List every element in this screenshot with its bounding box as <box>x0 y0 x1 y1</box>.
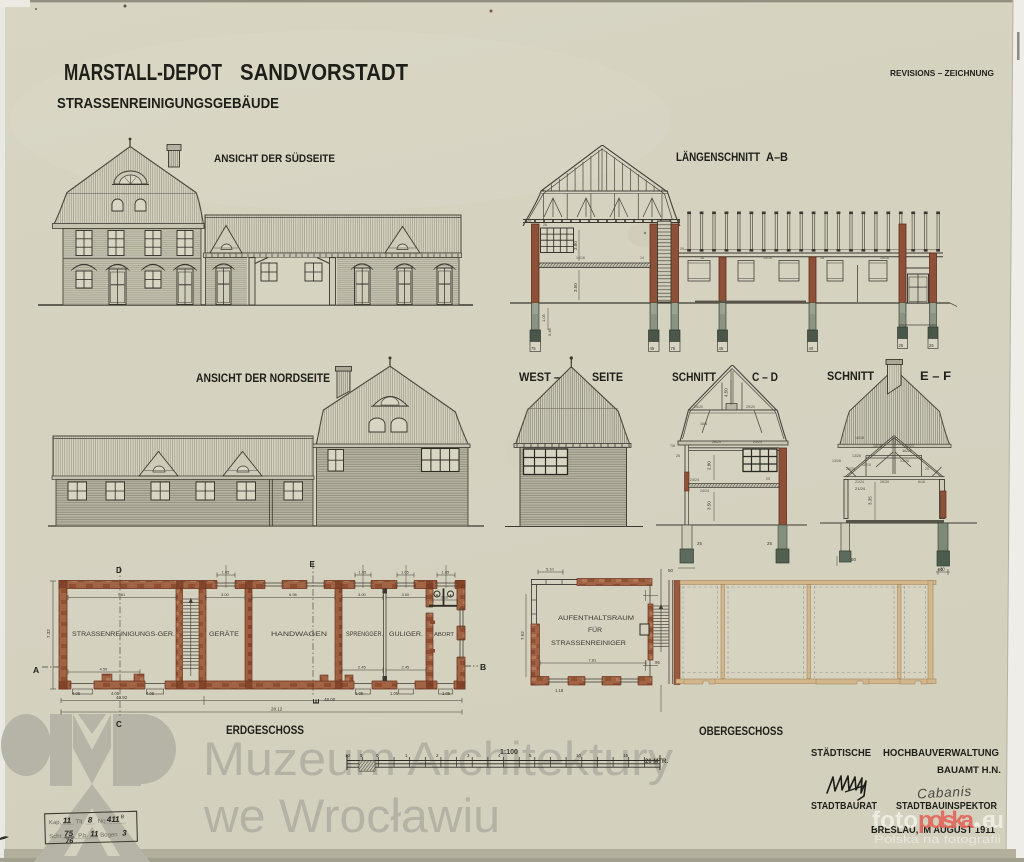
svg-text:GERÄTE: GERÄTE <box>209 631 239 638</box>
svg-text:1:100: 1:100 <box>500 749 518 756</box>
svg-text:1.05: 1.05 <box>390 691 399 696</box>
svg-text:HOCHBAUVERWALTUNG: HOCHBAUVERWALTUNG <box>883 748 999 759</box>
svg-text:25: 25 <box>767 541 773 546</box>
svg-text:3.00: 3.00 <box>221 592 230 597</box>
svg-text:FÜR: FÜR <box>588 627 603 634</box>
svg-text:3.50: 3.50 <box>573 283 578 292</box>
svg-text:WEST –: WEST – <box>519 372 561 384</box>
svg-text:25/20: 25/20 <box>746 405 755 409</box>
svg-text:45: 45 <box>719 346 724 351</box>
svg-text:Kap.: Kap. <box>49 820 62 826</box>
svg-text:.96: .96 <box>654 660 660 665</box>
svg-text:SEITE: SEITE <box>592 372 623 384</box>
svg-text:4.05: 4.05 <box>72 691 81 696</box>
svg-text:GULIGER.: GULIGER. <box>389 632 423 638</box>
svg-text:26/30: 26/30 <box>880 480 889 484</box>
svg-text:24/24: 24/24 <box>753 440 762 444</box>
svg-text:24/24: 24/24 <box>700 489 709 493</box>
svg-text:STRASSENREINIGUNGS-GER.: STRASSENREINIGUNGS-GER. <box>72 632 175 638</box>
svg-text:Polska na fotografii: Polska na fotografii <box>874 834 1001 846</box>
svg-text:OBERGESCHOSS: OBERGESCHOSS <box>699 724 783 738</box>
svg-text:1.18: 1.18 <box>555 688 564 693</box>
svg-text:SPRENGGER.: SPRENGGER. <box>346 632 383 638</box>
svg-text:3.35: 3.35 <box>868 496 873 505</box>
svg-text:STRASSENREINIGUNGSGEBÄUDE: STRASSENREINIGUNGSGEBÄUDE <box>57 95 279 112</box>
svg-text:25/20: 25/20 <box>694 405 703 409</box>
svg-text:STÄDTISCHE: STÄDTISCHE <box>811 746 871 759</box>
svg-text:3.80: 3.80 <box>573 241 578 250</box>
svg-text:50: 50 <box>851 557 857 562</box>
svg-text:75: 75 <box>531 346 536 351</box>
svg-text:28: 28 <box>543 223 547 227</box>
svg-text:BAUAMT H.N.: BAUAMT H.N. <box>937 765 1001 776</box>
svg-text:411: 411 <box>106 815 121 824</box>
svg-text:D: D <box>116 566 122 575</box>
svg-text:20: 20 <box>680 247 684 251</box>
svg-text:21/24: 21/24 <box>855 480 864 484</box>
svg-text:E – F: E – F <box>920 371 951 383</box>
svg-text:1.05: 1.05 <box>442 691 451 696</box>
svg-text:25: 25 <box>676 454 680 458</box>
svg-text:7.81: 7.81 <box>589 658 598 663</box>
svg-text:7.61: 7.61 <box>118 592 127 597</box>
svg-text:8/16: 8/16 <box>918 480 925 484</box>
svg-text:SCHNITT: SCHNITT <box>827 371 874 383</box>
svg-text:3: 3 <box>122 829 127 838</box>
svg-text:SANDVORSTADT: SANDVORSTADT <box>240 59 408 85</box>
svg-text:MARSTALL-DEPOT: MARSTALL-DEPOT <box>64 59 222 85</box>
svg-text:Tit.: Tit. <box>76 819 85 825</box>
svg-text:1.05: 1.05 <box>401 570 410 575</box>
svg-text:14: 14 <box>640 256 644 260</box>
svg-text:STADTBAURAT: STADTBAURAT <box>811 801 877 812</box>
svg-text:LÄNGENSCHNITT: LÄNGENSCHNITT <box>676 151 760 164</box>
svg-text:2.45: 2.45 <box>358 665 367 670</box>
svg-text:A–B: A–B <box>766 152 788 164</box>
svg-text:E: E <box>310 560 316 569</box>
svg-text:10: 10 <box>345 753 351 758</box>
svg-text:Muzeum Architektury: Muzeum Architektury <box>203 732 674 785</box>
svg-text:50: 50 <box>938 567 944 572</box>
svg-text:Schr.: Schr. <box>49 834 63 840</box>
svg-text:13/26: 13/26 <box>900 459 909 463</box>
svg-text:25: 25 <box>527 219 531 223</box>
svg-text:REVISIONS – ZEICHNUNG: REVISIONS – ZEICHNUNG <box>890 68 994 78</box>
svg-text:3.00: 3.00 <box>402 592 411 597</box>
svg-text:STRASSENREINIGER: STRASSENREINIGER <box>551 641 627 647</box>
svg-text:No: No <box>98 819 106 825</box>
svg-text:AUFENTHALTSRAUM: AUFENTHALTSRAUM <box>558 616 634 622</box>
svg-text:48.00: 48.00 <box>324 697 336 702</box>
svg-text:40.92: 40.92 <box>116 695 128 700</box>
svg-text:Cabanis: Cabanis <box>917 784 972 802</box>
svg-text:45: 45 <box>650 346 655 351</box>
svg-text:3.00: 3.00 <box>358 592 367 597</box>
svg-text:5.10: 5.10 <box>546 567 555 572</box>
svg-text:ANSICHT DER NORDSEITE: ANSICHT DER NORDSEITE <box>196 373 330 385</box>
svg-text:14/16: 14/16 <box>873 444 882 448</box>
svg-text:21/24: 21/24 <box>855 486 866 491</box>
svg-text:6.98: 6.98 <box>289 592 298 597</box>
svg-text:3.50: 3.50 <box>707 501 712 510</box>
svg-text:0.45: 0.45 <box>547 327 552 336</box>
svg-text:20 MTR.: 20 MTR. <box>645 759 668 765</box>
svg-text:7.52: 7.52 <box>520 631 525 640</box>
svg-text:1.05: 1.05 <box>541 313 546 322</box>
svg-text:4.50: 4.50 <box>100 667 109 672</box>
svg-text:ANSICHT DER SÜDSEITE: ANSICHT DER SÜDSEITE <box>214 152 335 165</box>
svg-text:16/18: 16/18 <box>855 436 864 440</box>
svg-text:16/4: 16/4 <box>700 422 707 426</box>
svg-text:15: 15 <box>623 753 629 758</box>
svg-text:24/24: 24/24 <box>690 478 699 482</box>
svg-text:10: 10 <box>576 753 582 758</box>
svg-text:28.12: 28.12 <box>271 707 283 712</box>
svg-text:2.45: 2.45 <box>402 665 411 670</box>
svg-text:40: 40 <box>809 346 814 351</box>
svg-text:16/21: 16/21 <box>902 448 913 453</box>
svg-text:C – D: C – D <box>752 372 778 384</box>
svg-text:75: 75 <box>671 346 676 351</box>
svg-text:Bogen: Bogen <box>100 832 118 838</box>
svg-text:7/8: 7/8 <box>670 444 675 448</box>
svg-text:1.05: 1.05 <box>355 691 364 696</box>
svg-text:4.50: 4.50 <box>724 388 729 397</box>
svg-text:25: 25 <box>697 541 703 546</box>
svg-text:B: B <box>480 662 486 672</box>
svg-text:A: A <box>33 665 39 675</box>
svg-text:7.32: 7.32 <box>46 629 51 638</box>
svg-text:10/10: 10/10 <box>862 463 871 467</box>
svg-text:we Wrocławiu: we Wrocławiu <box>203 789 500 842</box>
svg-text:28/24: 28/24 <box>712 440 721 444</box>
svg-text:ABORT: ABORT <box>434 632 455 638</box>
svg-text:25: 25 <box>766 477 770 481</box>
svg-text:13/26: 13/26 <box>832 459 841 463</box>
svg-text:SCHNITT: SCHNITT <box>672 372 716 384</box>
svg-text:76: 76 <box>65 838 73 845</box>
svg-text:50: 50 <box>668 568 674 573</box>
svg-text:11: 11 <box>90 829 99 838</box>
svg-text:4.05: 4.05 <box>146 691 155 696</box>
svg-text:2.80: 2.80 <box>707 461 712 470</box>
svg-text:ERDGESCHOSS: ERDGESCHOSS <box>226 723 304 737</box>
svg-text:eu: eu <box>982 807 1004 834</box>
svg-text:25: 25 <box>899 343 904 348</box>
svg-text:20/25: 20/25 <box>846 467 855 471</box>
svg-text:foto: foto <box>872 807 918 834</box>
svg-text:C: C <box>116 720 122 729</box>
svg-text:11: 11 <box>63 816 72 825</box>
svg-text:25: 25 <box>929 343 934 348</box>
svg-text:8: 8 <box>88 815 93 824</box>
svg-text:HANDWAGEN: HANDWAGEN <box>271 632 327 638</box>
svg-text:25: 25 <box>925 467 929 471</box>
svg-text:E: E <box>312 698 321 704</box>
svg-text:13/26: 13/26 <box>852 454 861 458</box>
svg-text:2.10: 2.10 <box>441 595 450 600</box>
svg-text:14/16: 14/16 <box>576 256 585 260</box>
svg-text:polska: polska <box>918 807 975 834</box>
